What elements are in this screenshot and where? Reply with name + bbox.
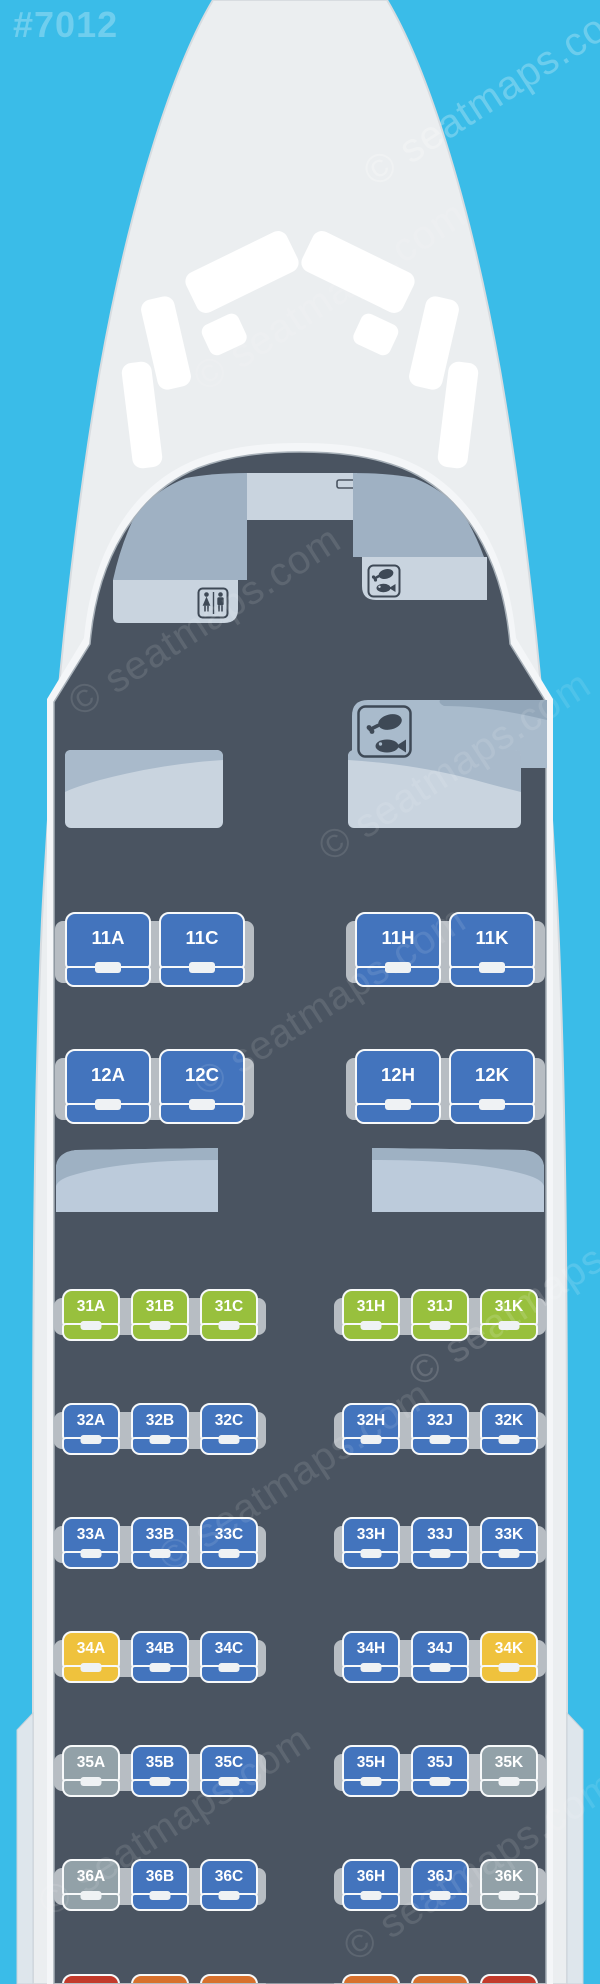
seat-35K[interactable]: 35K — [480, 1745, 538, 1797]
seat-cushion-notch — [430, 1891, 451, 1900]
seat-36B[interactable]: 36B — [131, 1859, 189, 1911]
seat-cushion-notch — [219, 1663, 240, 1672]
seat-cushion-notch — [150, 1663, 171, 1672]
seat-cushion-notch — [150, 1777, 171, 1786]
seat-33K[interactable]: 33K — [480, 1517, 538, 1569]
seat-label: 12K — [449, 1064, 535, 1086]
seat-36A[interactable]: 36A — [62, 1859, 120, 1911]
seat-cushion-notch — [81, 1435, 102, 1444]
seat-31K[interactable]: 31K — [480, 1289, 538, 1341]
seat-32J[interactable]: 32J — [411, 1403, 469, 1455]
seat-35A[interactable]: 35A — [62, 1745, 120, 1797]
seat-label: 34J — [411, 1640, 469, 1658]
seat-11C[interactable]: 11C — [159, 912, 245, 987]
seat-label: 33K — [480, 1526, 538, 1544]
seat-label: 11K — [449, 927, 535, 949]
seat-label: 33C — [200, 1526, 258, 1544]
seat-31A[interactable]: 31A — [62, 1289, 120, 1341]
seat-32C[interactable]: 32C — [200, 1403, 258, 1455]
seat-cushion-notch — [95, 962, 121, 973]
seat-label: 32H — [342, 1412, 400, 1430]
seat-12H[interactable]: 12H — [355, 1049, 441, 1124]
seat-32K[interactable]: 32K — [480, 1403, 538, 1455]
seat-33J[interactable]: 33J — [411, 1517, 469, 1569]
seat-label: 11H — [355, 927, 441, 949]
seat-cushion-notch — [95, 1099, 121, 1110]
seat-label: 32C — [200, 1412, 258, 1430]
seat-33A[interactable]: 33A — [62, 1517, 120, 1569]
seat-12C[interactable]: 12C — [159, 1049, 245, 1124]
seat-label: 33A — [62, 1526, 120, 1544]
seat-cushion-notch — [189, 962, 215, 973]
seat-label: 12H — [355, 1064, 441, 1086]
seat-cushion-notch — [430, 1663, 451, 1672]
seat-label: 12C — [159, 1064, 245, 1086]
seat-cushion-notch — [361, 1321, 382, 1330]
seat-label: 33J — [411, 1526, 469, 1544]
seat-cushion-notch — [361, 1663, 382, 1672]
seat-cushion-notch — [219, 1435, 240, 1444]
seat-34B[interactable]: 34B — [131, 1631, 189, 1683]
seat-cushion-notch — [150, 1435, 171, 1444]
seat-cushion-notch — [499, 1777, 520, 1786]
seat-label: 34K — [480, 1640, 538, 1658]
seat-label: 31H — [342, 1298, 400, 1316]
seat-36J[interactable]: 36J — [411, 1859, 469, 1911]
seat-31C[interactable]: 31C — [200, 1289, 258, 1341]
seat-label: 36C — [200, 1868, 258, 1886]
seat-11A[interactable]: 11A — [65, 912, 151, 987]
seat-label: 36B — [131, 1868, 189, 1886]
seat-cushion-notch — [479, 1099, 505, 1110]
seat-cushion-notch — [361, 1435, 382, 1444]
seat-cushion-notch — [361, 1891, 382, 1900]
seat-32B[interactable]: 32B — [131, 1403, 189, 1455]
seat-35H[interactable]: 35H — [342, 1745, 400, 1797]
seat-label: 36A — [62, 1868, 120, 1886]
seat-label: 36K — [480, 1868, 538, 1886]
seat-label: 31C — [200, 1298, 258, 1316]
aircraft-structure — [0, 0, 600, 1984]
seat-label: 35H — [342, 1754, 400, 1772]
seat-cushion-notch — [430, 1549, 451, 1558]
seat-34K[interactable]: 34K — [480, 1631, 538, 1683]
seat-cushion-notch — [81, 1777, 102, 1786]
seat-cushion-notch — [499, 1549, 520, 1558]
wing-right — [567, 1713, 583, 1984]
seat-31H[interactable]: 31H — [342, 1289, 400, 1341]
seat-35B[interactable]: 35B — [131, 1745, 189, 1797]
seat-cushion-notch — [385, 1099, 411, 1110]
seat-cushion-notch — [150, 1321, 171, 1330]
seat-cushion-notch — [499, 1321, 520, 1330]
seat-34H[interactable]: 34H — [342, 1631, 400, 1683]
seat-cushion-notch — [499, 1891, 520, 1900]
seat-label: 12A — [65, 1064, 151, 1086]
seat-31J[interactable]: 31J — [411, 1289, 469, 1341]
seat-label: 34C — [200, 1640, 258, 1658]
seat-label: 34B — [131, 1640, 189, 1658]
seat-33C[interactable]: 33C — [200, 1517, 258, 1569]
seat-cushion-notch — [150, 1549, 171, 1558]
seat-label: 35J — [411, 1754, 469, 1772]
seat-label: 32A — [62, 1412, 120, 1430]
seat-label: 32K — [480, 1412, 538, 1430]
seat-cushion-notch — [385, 962, 411, 973]
seat-cushion-notch — [479, 962, 505, 973]
wing-left — [17, 1713, 33, 1984]
seat-label: 31A — [62, 1298, 120, 1316]
seatmap-canvas: 11A 11C 11H 11K — [0, 0, 600, 1984]
seat-11H[interactable]: 11H — [355, 912, 441, 987]
seat-35J[interactable]: 35J — [411, 1745, 469, 1797]
seat-cushion-notch — [219, 1891, 240, 1900]
seat-label: 33H — [342, 1526, 400, 1544]
seat-cushion-notch — [430, 1321, 451, 1330]
seat-33B[interactable]: 33B — [131, 1517, 189, 1569]
seat-34A[interactable]: 34A — [62, 1631, 120, 1683]
seat-cushion-notch — [81, 1321, 102, 1330]
seat-12A[interactable]: 12A — [65, 1049, 151, 1124]
seat-cushion-notch — [219, 1321, 240, 1330]
seat-cushion-notch — [361, 1549, 382, 1558]
seat-label: 35B — [131, 1754, 189, 1772]
seat-36C[interactable]: 36C — [200, 1859, 258, 1911]
seat-cushion-notch — [430, 1777, 451, 1786]
seat-35C[interactable]: 35C — [200, 1745, 258, 1797]
seat-32A[interactable]: 32A — [62, 1403, 120, 1455]
seat-label: 11A — [65, 927, 151, 949]
seat-cushion-notch — [81, 1663, 102, 1672]
seat-cushion-notch — [361, 1777, 382, 1786]
seat-32H[interactable]: 32H — [342, 1403, 400, 1455]
seat-36H[interactable]: 36H — [342, 1859, 400, 1911]
seat-cushion-notch — [189, 1099, 215, 1110]
seat-label: 32J — [411, 1412, 469, 1430]
seat-cushion-notch — [499, 1435, 520, 1444]
seat-label: 35C — [200, 1754, 258, 1772]
seat-label: 34A — [62, 1640, 120, 1658]
seat-34C[interactable]: 34C — [200, 1631, 258, 1683]
seat-33H[interactable]: 33H — [342, 1517, 400, 1569]
seat-label: 35K — [480, 1754, 538, 1772]
seat-label: 31B — [131, 1298, 189, 1316]
seat-label: 36J — [411, 1868, 469, 1886]
seat-label: 11C — [159, 927, 245, 949]
seat-cushion-notch — [150, 1891, 171, 1900]
seat-label: 36H — [342, 1868, 400, 1886]
seat-label: 34H — [342, 1640, 400, 1658]
seat-label: 33B — [131, 1526, 189, 1544]
seat-cushion-notch — [81, 1891, 102, 1900]
map-id-label: #7012 — [13, 4, 118, 46]
seat-36K[interactable]: 36K — [480, 1859, 538, 1911]
seat-34J[interactable]: 34J — [411, 1631, 469, 1683]
seat-cushion-notch — [81, 1549, 102, 1558]
seat-11K[interactable]: 11K — [449, 912, 535, 987]
seat-cushion-notch — [499, 1663, 520, 1672]
seat-cushion-notch — [219, 1549, 240, 1558]
seat-label: 31J — [411, 1298, 469, 1316]
seat-31B[interactable]: 31B — [131, 1289, 189, 1341]
seat-cushion-notch — [430, 1435, 451, 1444]
seat-12K[interactable]: 12K — [449, 1049, 535, 1124]
seat-cushion-notch — [219, 1777, 240, 1786]
seat-label: 35A — [62, 1754, 120, 1772]
seat-label: 31K — [480, 1298, 538, 1316]
seat-label: 32B — [131, 1412, 189, 1430]
galley-front-panel-lower — [362, 557, 487, 600]
